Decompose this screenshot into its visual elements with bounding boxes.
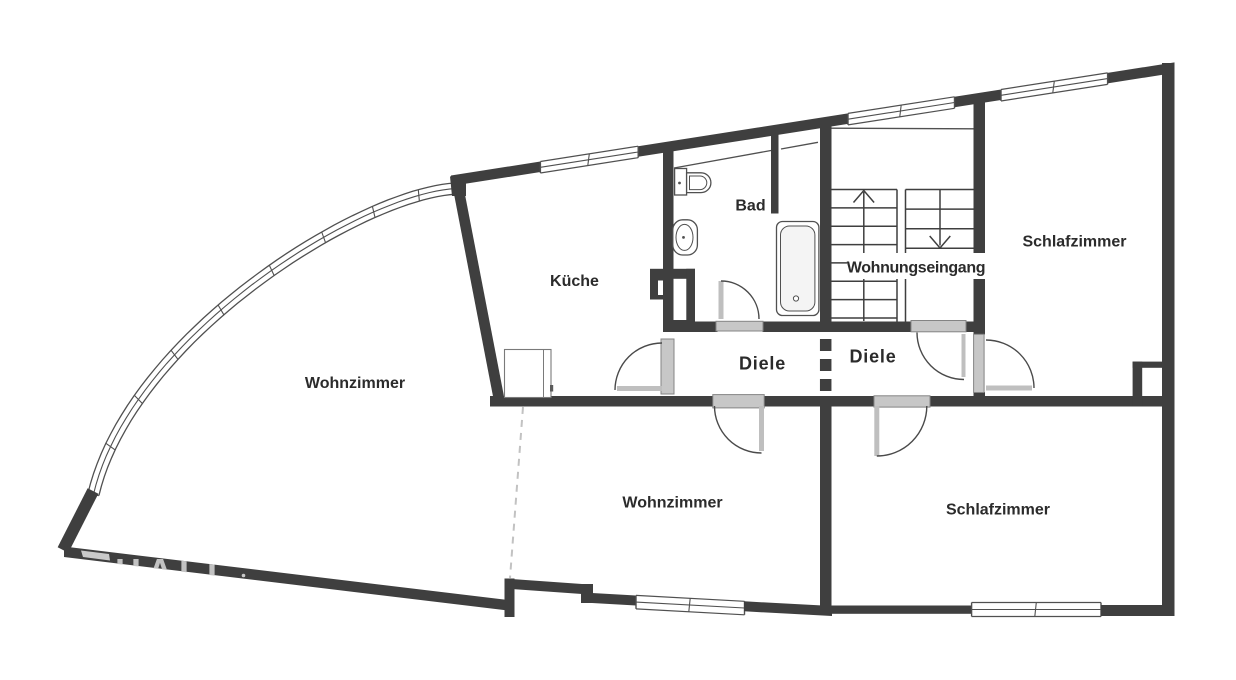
svg-text:Bad: Bad [735,198,765,215]
svg-text:HALL: HALL [115,551,235,592]
svg-text:Wohnzimmer: Wohnzimmer [305,375,405,392]
svg-text:Diele: Diele [739,354,786,374]
svg-text:Wohnungseingang: Wohnungseingang [847,260,985,277]
svg-text:Schlafzimmer: Schlafzimmer [1022,234,1126,251]
svg-text:Diele: Diele [849,347,896,367]
svg-text:Küche: Küche [550,273,599,290]
svg-text:Wohnzimmer: Wohnzimmer [622,495,722,512]
svg-text:Schlafzimmer: Schlafzimmer [946,502,1050,519]
